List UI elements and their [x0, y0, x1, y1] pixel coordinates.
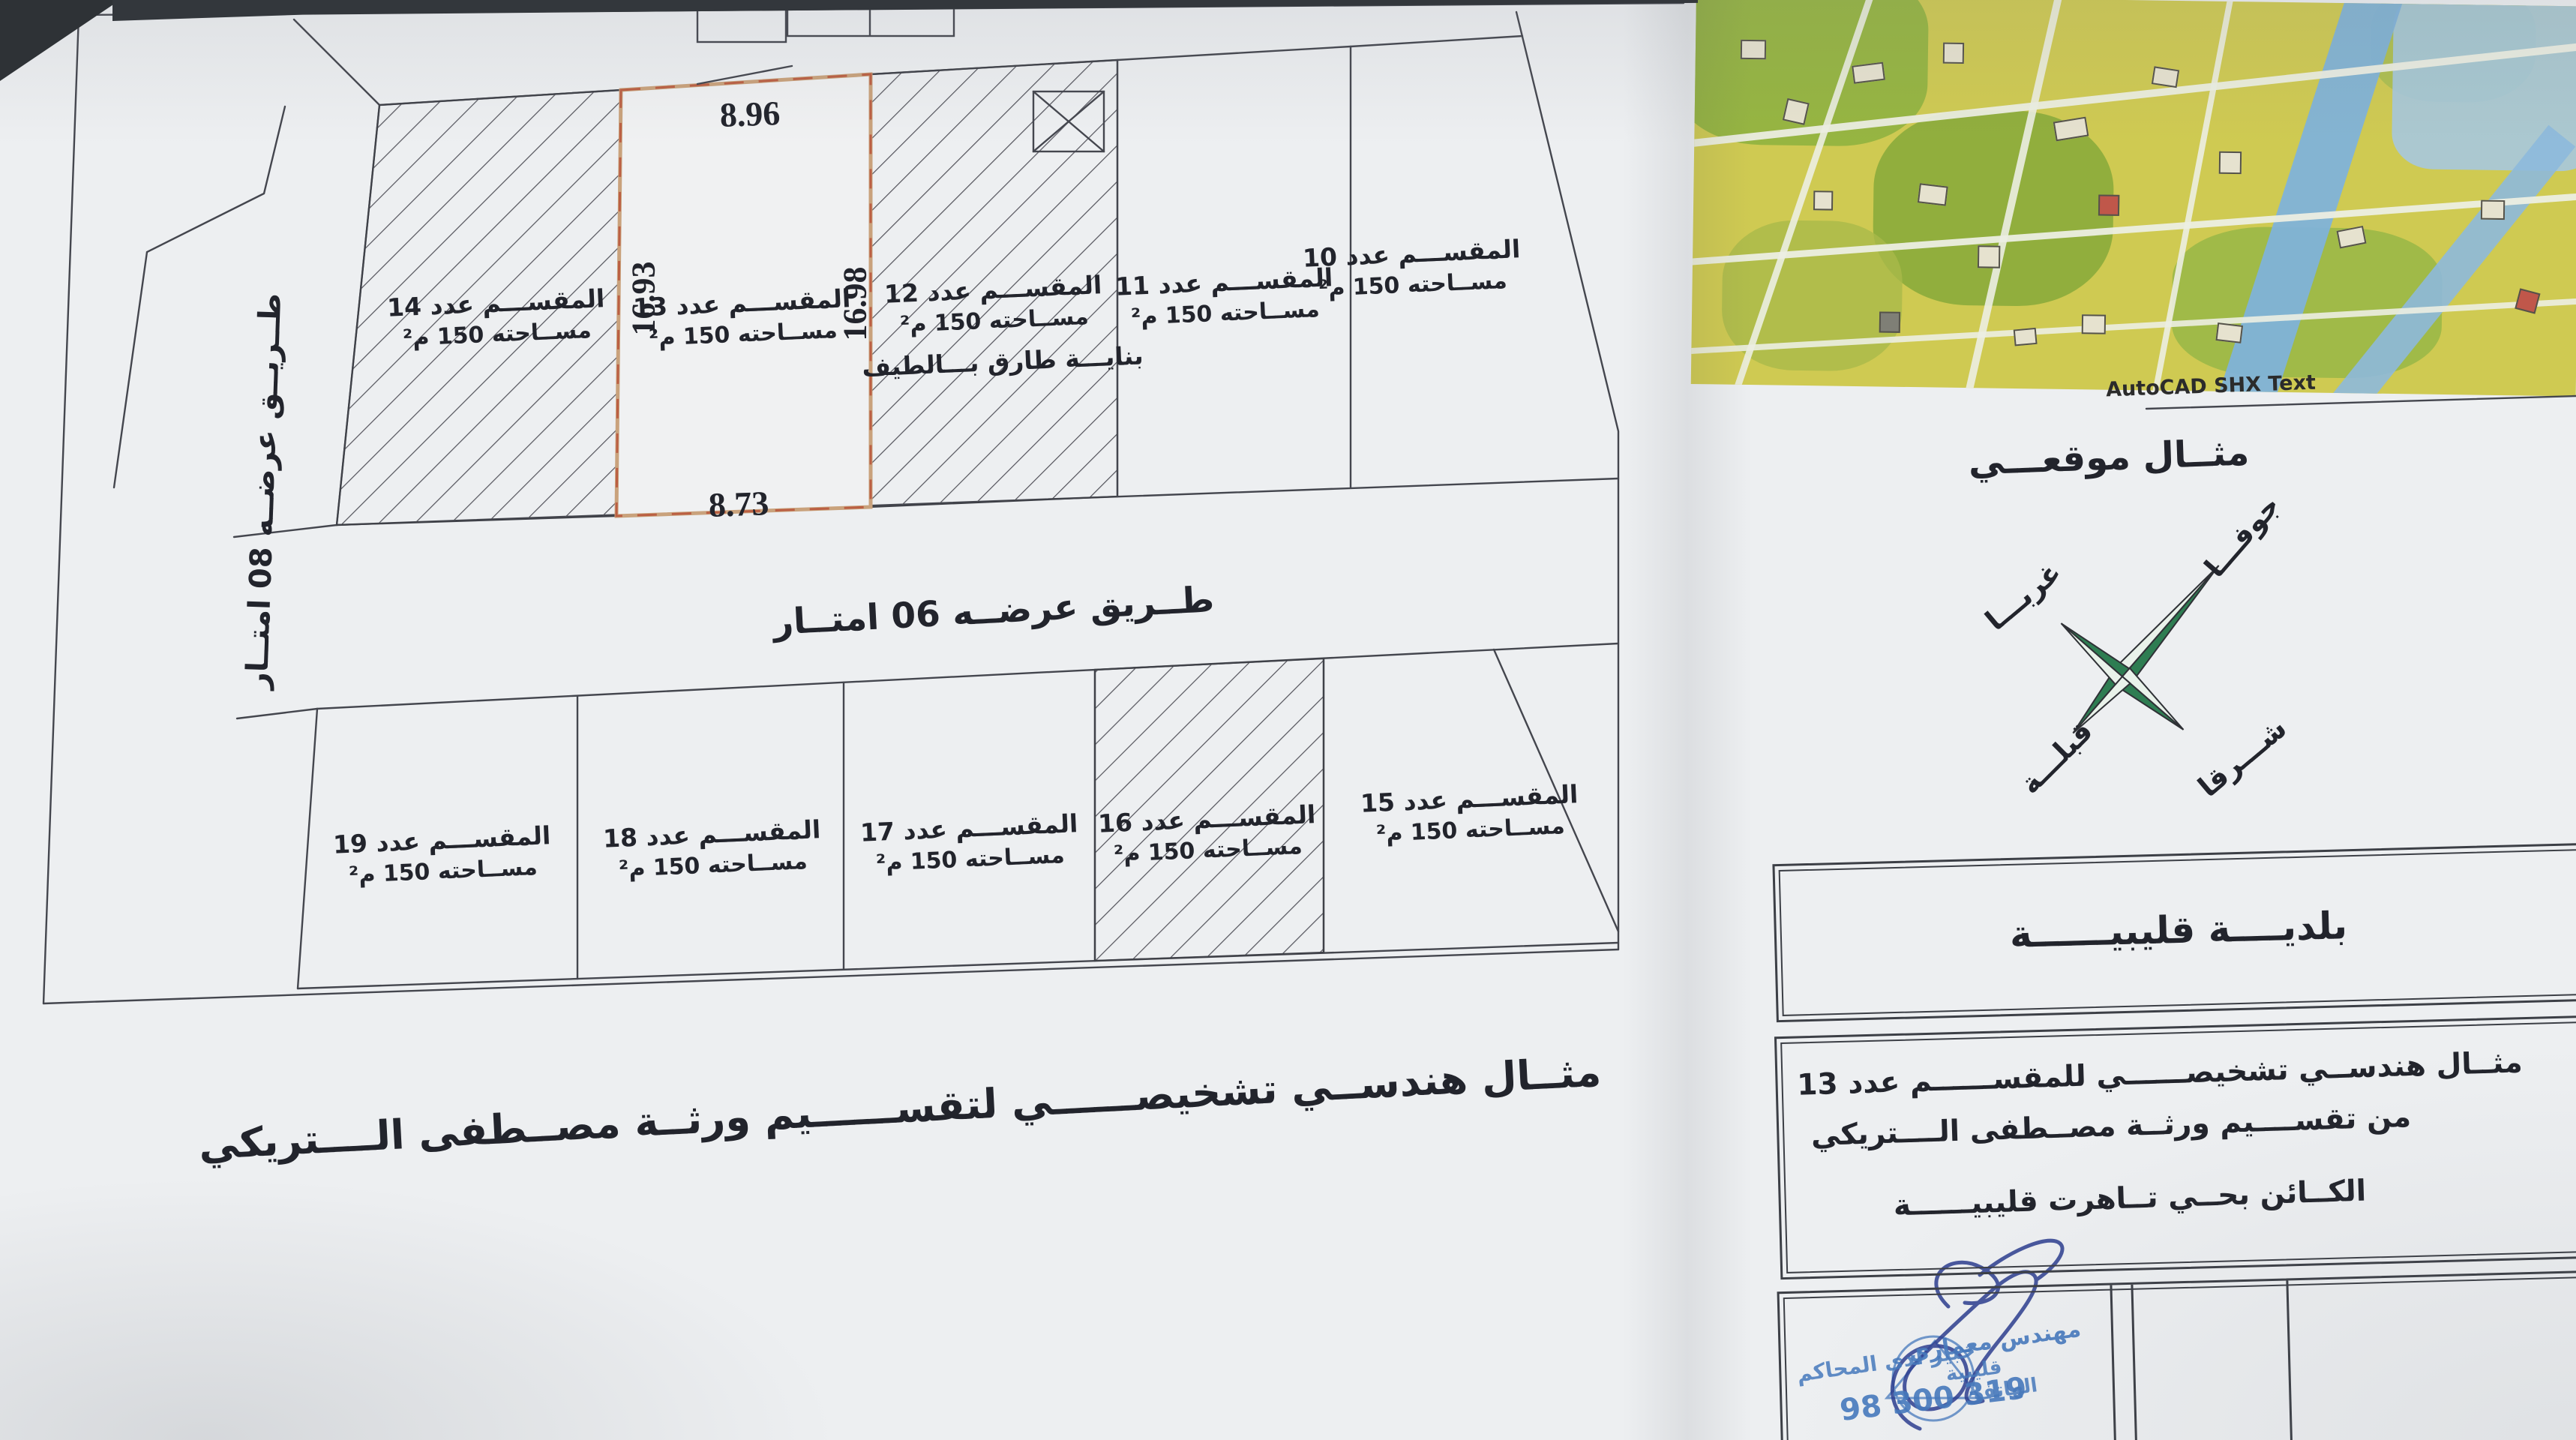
map-caption-rule [2146, 396, 2576, 409]
plot-10-label: المقســـم عدد 10 مســاحته 150 م² [1302, 232, 1522, 304]
dim-bottom: 8.73 [708, 483, 769, 525]
plot-11-label: المقســـم عدد 11 مســاحته 150 م² [1114, 261, 1335, 333]
municipality-title: بلديــــة قليبيــــــة [2009, 904, 2348, 956]
plot-16-label: المقســـم عدد 16 مســاحته 150 م² [1097, 798, 1318, 870]
plot-12-label: المقســـم عدد 12 مســاحته 150 م² [883, 268, 1104, 340]
plan-photo: طــريــق عرضــه 08 امتــار طــريق عرضــه… [0, 0, 2576, 1440]
plot-15-label: المقســـم عدد 15 مســاحته 150 م² [1360, 778, 1580, 850]
dim-left: 16.93 [625, 262, 663, 336]
plot-19-label: المقســـم عدد 19 مســاحته 150 م² [332, 819, 553, 891]
dim-right: 16.98 [836, 267, 874, 341]
dim-top: 8.96 [719, 93, 781, 135]
plot-13-label: المقســـم عدد 13 مســاحته 150 م² [632, 282, 853, 354]
plot-14-label: المقســـم عدد 14 مســاحته 150 م² [386, 282, 607, 354]
plot-18-label: المقســـم عدد 18 مســاحته 150 م² [602, 813, 823, 885]
plot-17-label: المقســـم عدد 17 مســاحته 150 م² [859, 807, 1080, 879]
